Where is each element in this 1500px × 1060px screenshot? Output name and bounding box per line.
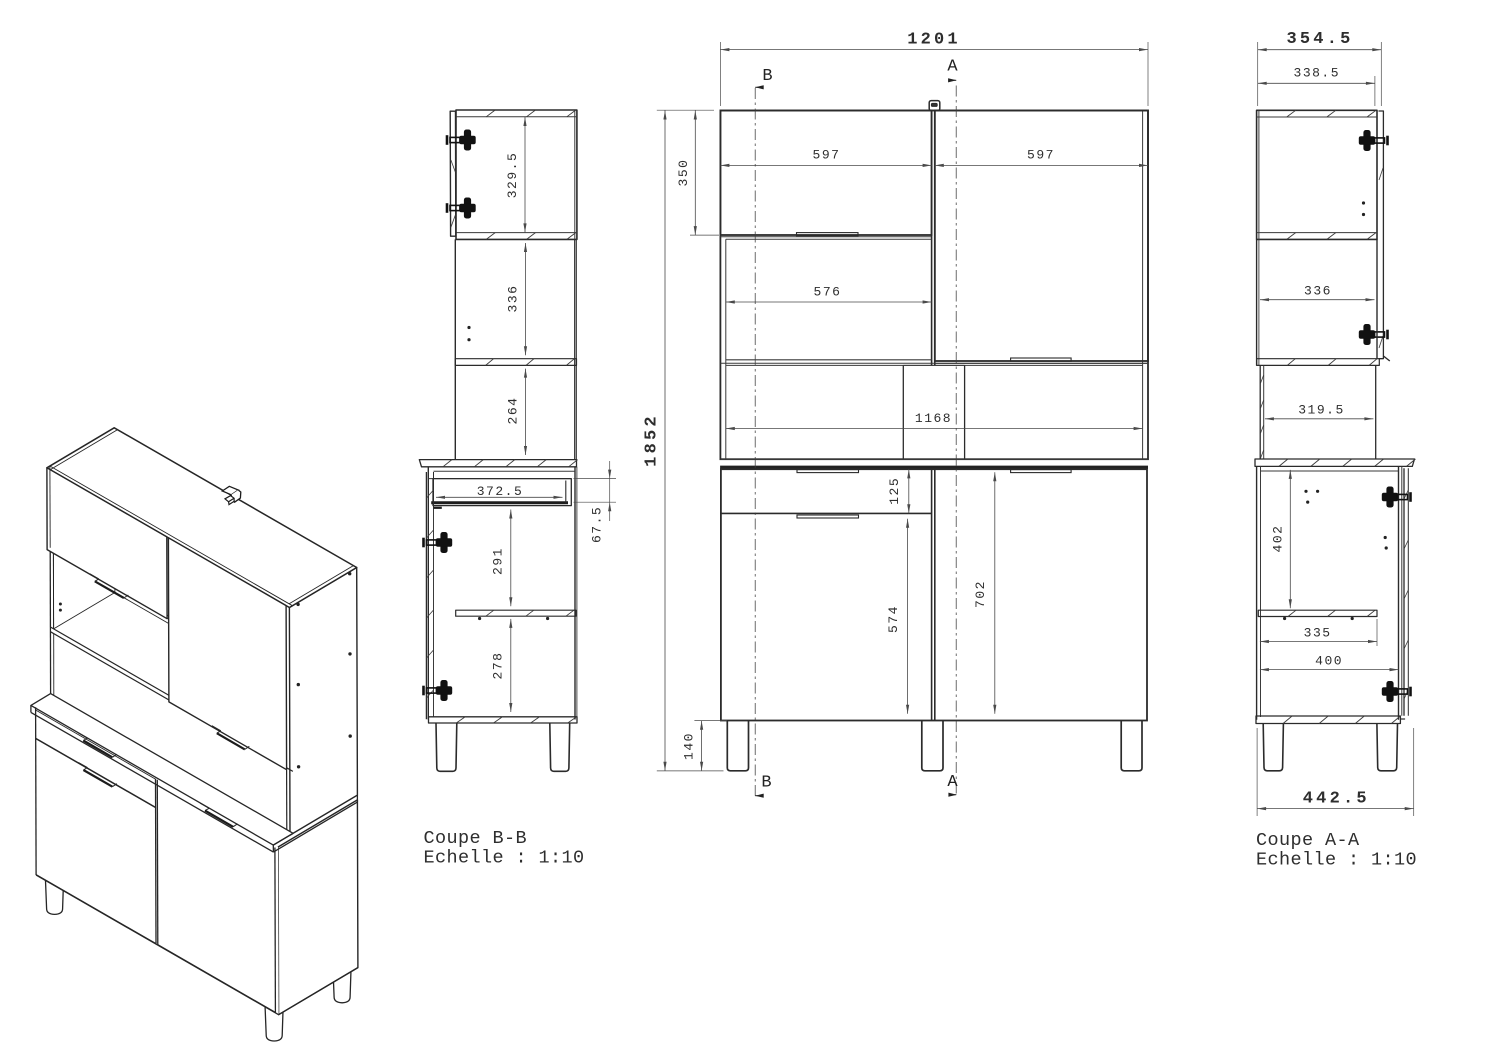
svg-text:576: 576 xyxy=(814,284,842,299)
svg-text:402: 402 xyxy=(1270,525,1285,553)
svg-text:Echelle : 1:10: Echelle : 1:10 xyxy=(1256,850,1417,871)
svg-text:125: 125 xyxy=(887,477,902,505)
svg-text:1168: 1168 xyxy=(915,411,952,426)
svg-text:372.5: 372.5 xyxy=(477,484,524,499)
svg-text:1201: 1201 xyxy=(907,31,961,50)
svg-text:67.5: 67.5 xyxy=(590,506,605,543)
svg-text:278: 278 xyxy=(491,652,506,680)
svg-text:702: 702 xyxy=(973,580,988,608)
svg-text:140: 140 xyxy=(682,732,697,760)
svg-text:291: 291 xyxy=(491,547,506,575)
svg-text:597: 597 xyxy=(1027,148,1055,163)
svg-text:319.5: 319.5 xyxy=(1298,403,1345,418)
svg-text:329.5: 329.5 xyxy=(505,152,520,199)
svg-text:A: A xyxy=(947,58,958,77)
svg-text:400: 400 xyxy=(1315,653,1343,668)
svg-text:B: B xyxy=(761,774,771,793)
svg-text:336: 336 xyxy=(506,285,521,313)
svg-text:350: 350 xyxy=(676,159,691,187)
svg-text:442.5: 442.5 xyxy=(1303,790,1370,809)
svg-text:Coupe A-A: Coupe A-A xyxy=(1256,830,1360,851)
svg-text:335: 335 xyxy=(1304,625,1332,640)
svg-text:Coupe B-B: Coupe B-B xyxy=(424,828,528,849)
svg-text:336: 336 xyxy=(1304,283,1332,298)
svg-text:1852: 1852 xyxy=(643,413,662,467)
svg-text:574: 574 xyxy=(886,605,901,633)
svg-text:B: B xyxy=(762,67,772,86)
svg-text:338.5: 338.5 xyxy=(1294,66,1341,81)
svg-text:597: 597 xyxy=(813,148,841,163)
svg-text:A: A xyxy=(947,773,958,792)
svg-text:354.5: 354.5 xyxy=(1286,30,1353,49)
svg-text:264: 264 xyxy=(506,397,521,425)
svg-text:Echelle : 1:10: Echelle : 1:10 xyxy=(424,848,585,869)
